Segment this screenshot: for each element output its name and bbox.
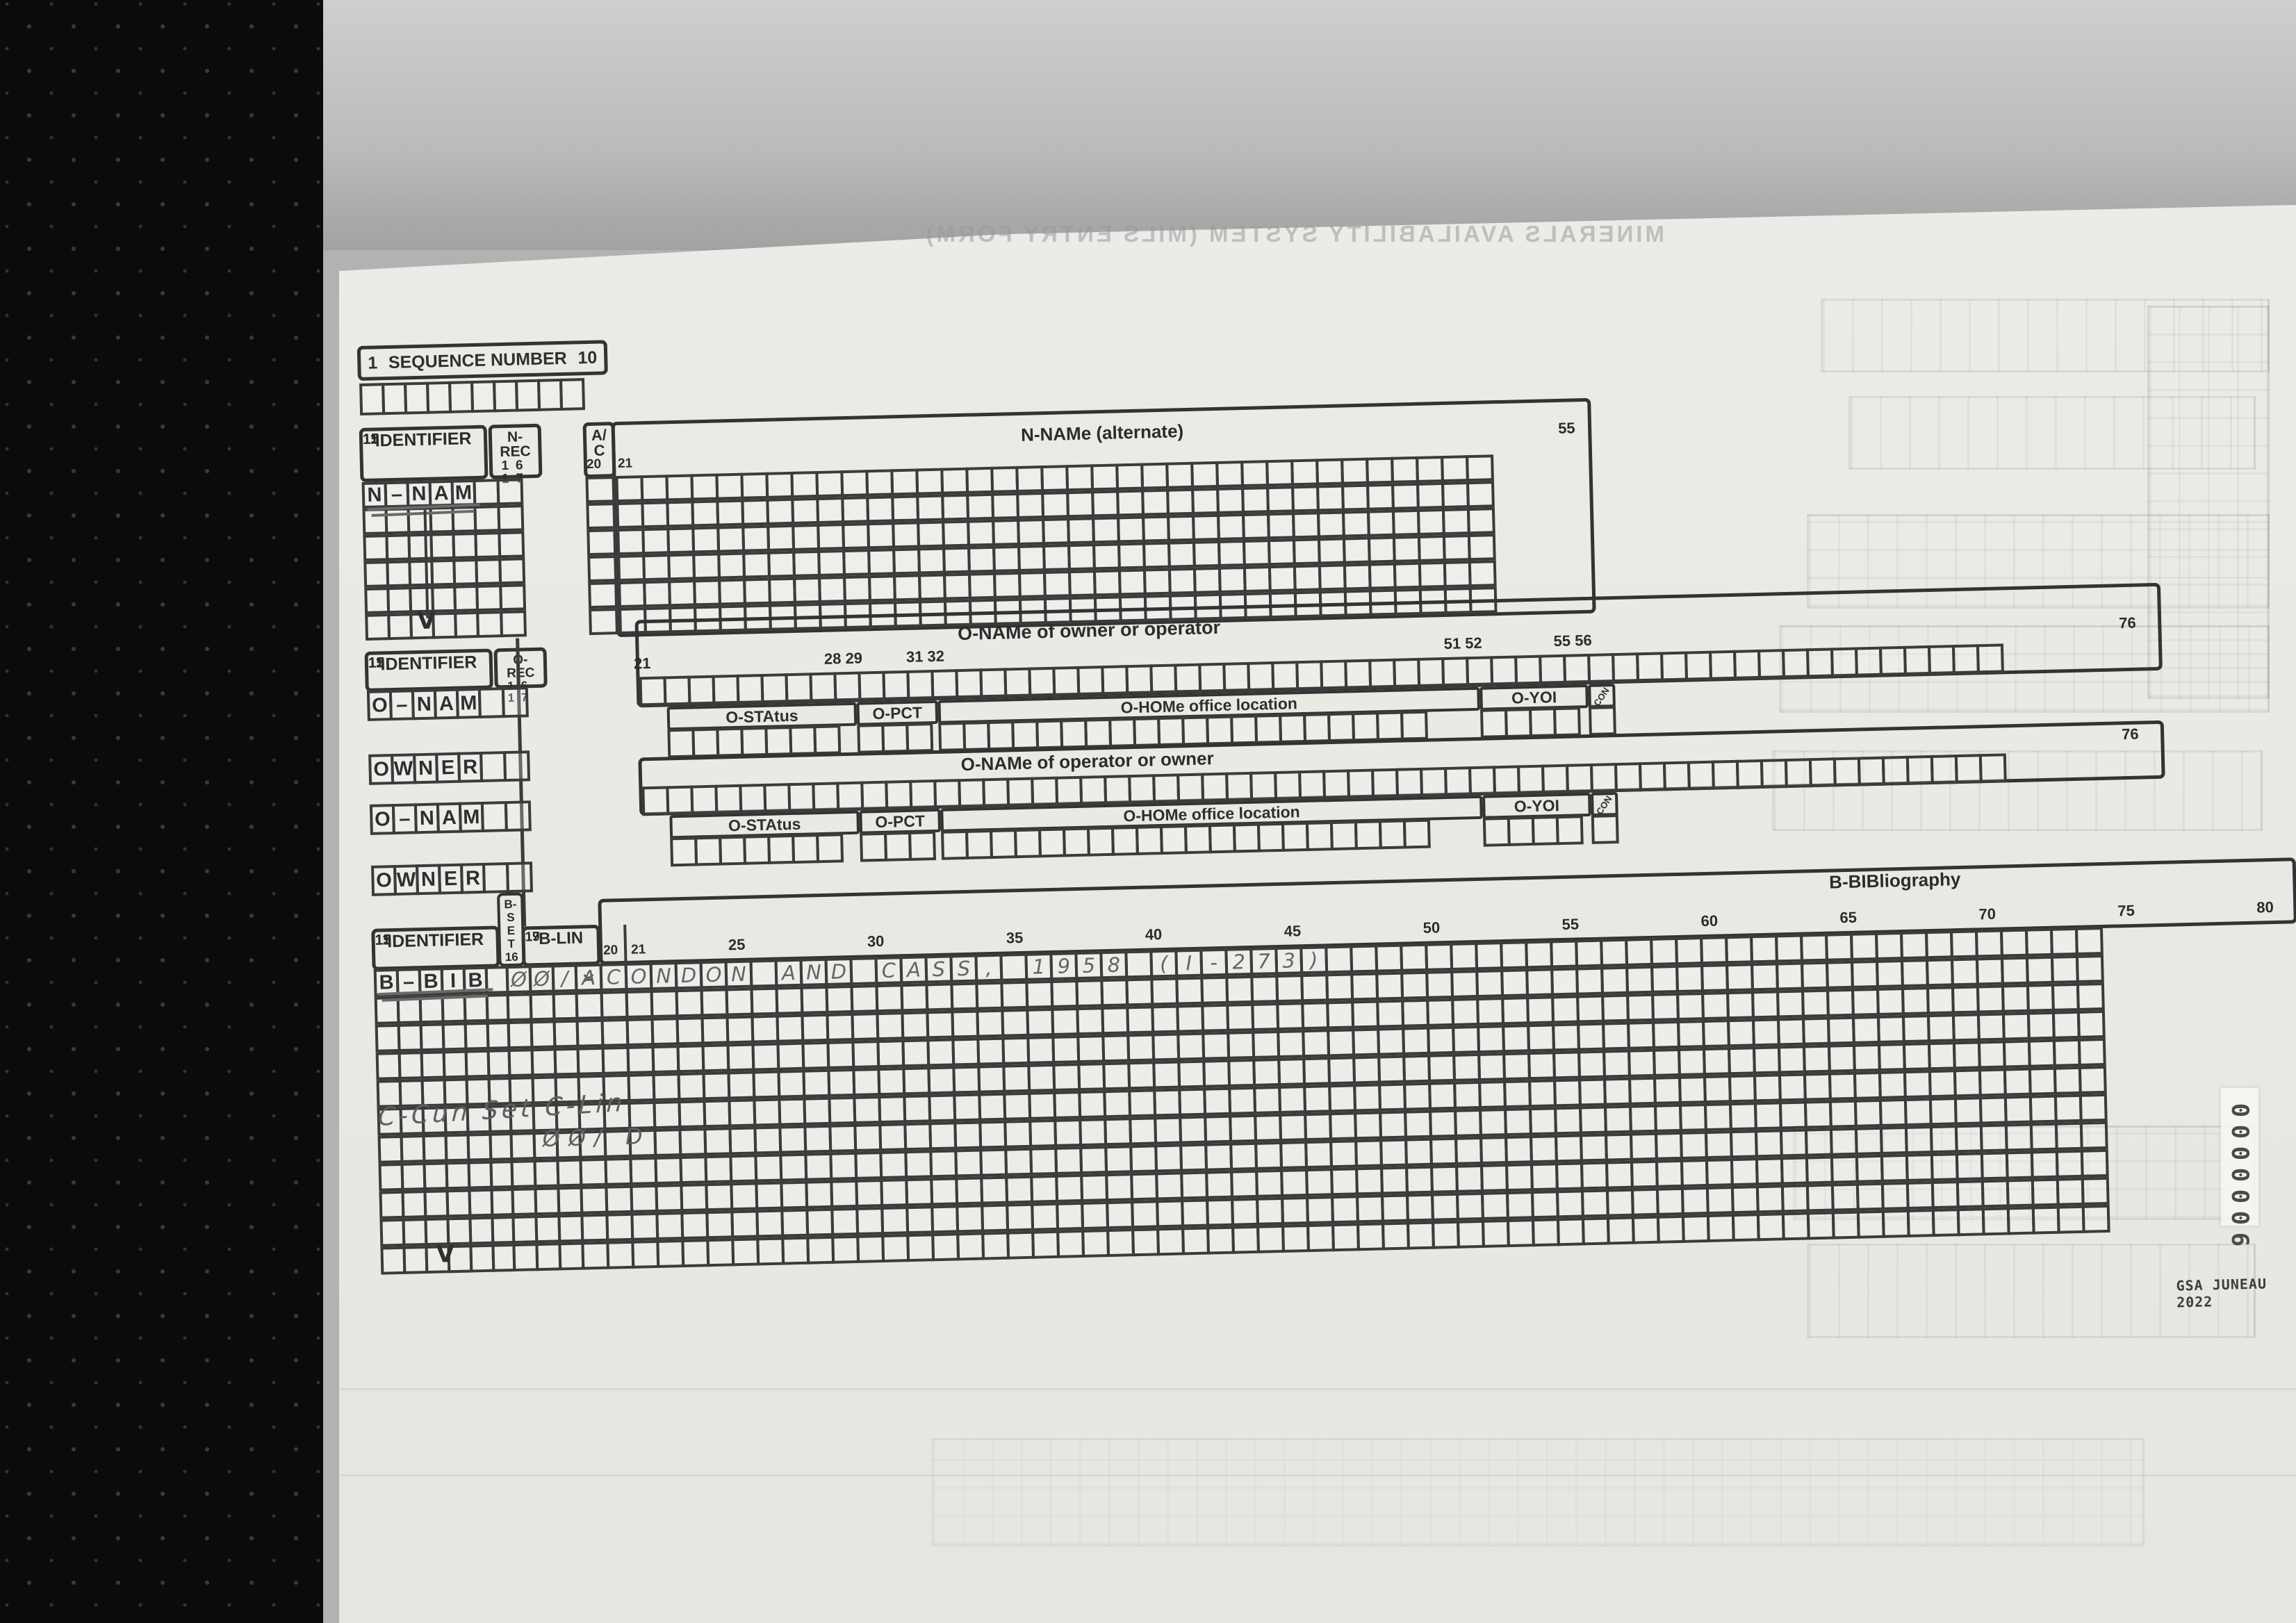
grid-cell [916,495,944,522]
grid-cell [1706,1186,1735,1214]
grid-cell [1830,1128,1858,1156]
grid-cell [1925,930,1953,959]
grid-cell [1077,1062,1106,1091]
grid-cell [705,1183,733,1211]
grid-cell [981,1232,1010,1260]
grid-cell [1857,1210,1885,1239]
grid-cell [902,1066,930,1095]
grid-cell [1930,1153,1959,1181]
grid-cell [1176,773,1204,803]
grid-cell [1704,1103,1732,1131]
ac-cell [587,529,616,556]
grid-cell [576,1047,605,1076]
grid-cell [1341,484,1370,511]
printed-character: E [441,756,455,779]
grid-cell [702,1071,730,1100]
grid-cell [694,837,722,866]
grid-cell [767,834,795,864]
grid-cell [1092,516,1120,543]
grid-cell [1444,766,1472,796]
grid-cell [1325,945,1353,973]
grid-cell [1368,536,1396,563]
grid-cell [1400,711,1428,741]
grid-cell [1514,655,1542,685]
printed-character: R [463,756,478,780]
grid-cell [1468,560,1497,587]
grid-cell [675,1016,704,1045]
grid-cell [678,1100,706,1128]
grid-cell [1663,761,1691,791]
grid-cell [630,1185,658,1213]
grid-cell [1400,971,1429,1000]
ac-cell [586,502,616,529]
n-grid-row [363,531,525,561]
ac-cell [587,555,617,582]
grid-cell [812,782,839,811]
grid-cell [2053,1066,2082,1095]
grid-cell [1331,1195,1359,1224]
grid-cell [1128,1089,1156,1117]
grid-cell [1589,706,1616,736]
o-sub-label-text: O-STAtus [672,814,857,836]
grid-cell [690,785,718,815]
grid-cell [585,476,615,503]
grid-cell: 1 [1024,953,1053,981]
printed-character: O [375,808,391,832]
grid-cell [955,1176,983,1205]
grid-cell [1776,990,1805,1019]
grid-cell [743,578,771,605]
grid-cell [1292,511,1320,538]
grid-cell [1305,1168,1334,1196]
grid-cell [1452,1053,1481,1082]
printed-character: A [438,692,454,716]
grid-cell [1177,1060,1206,1089]
handwritten-character: ( [1160,952,1168,975]
grid-cell [1277,1030,1305,1058]
grid-cell [1331,1223,1360,1251]
grid-cell [2001,957,2029,985]
grid-cell [1809,757,1837,787]
grid-cell [1301,1001,1329,1030]
grid-cell [575,991,604,1020]
grid-cell: 3 [1274,946,1303,975]
grid-cell [800,986,828,1014]
grid-cell [1377,1028,1405,1056]
grid-cell [2050,928,2078,956]
grid-cell [1051,1035,1080,1064]
grid-cell [1405,1166,1434,1194]
grid-cell [1354,820,1382,850]
grid-cell [1254,1114,1282,1142]
grid-cell [1076,1035,1105,1063]
grid-cell [1003,1092,1031,1121]
grid-cell [791,497,819,525]
grid-cell: 7 [1249,947,1278,975]
grid-cell [1202,1060,1231,1088]
grid-cell [1602,1050,1631,1078]
b-col-num-60: 60 [1700,912,1718,931]
n-identifier-header: IDENTIFIER1115 [359,425,489,482]
grid-cell [1500,969,1529,997]
grid-cell [651,1045,680,1073]
grid-cell [906,670,934,700]
grid-cell [679,1155,707,1184]
grid-cell [703,1099,731,1128]
printed-character: N [367,484,382,507]
grid-cell [1703,1047,1731,1076]
grid-cell [857,724,885,754]
grid-cell [1225,975,1254,1004]
grid-cell [967,546,996,573]
grid-cell [1231,1198,1259,1226]
grid-cell [878,1123,907,1151]
grid-cell [852,1068,880,1096]
grid-cell [717,552,746,579]
grid-cell [2082,1205,2110,1233]
handwritten-character: 2 [1232,950,1245,973]
grid-cell [1532,1218,1560,1246]
grid-cell [1432,1221,1460,1249]
grid-cell [958,778,985,808]
grid-cell [2051,955,2079,984]
b-col-num-35: 35 [1006,929,1024,948]
printed-character: – [399,807,411,830]
grid-cell [1281,1224,1310,1253]
grid-cell [1833,757,1861,786]
grid-cell [790,471,819,498]
grid-cell [1252,1058,1281,1087]
grid-cell [979,668,1007,698]
grid-cell [1980,1123,2008,1152]
grid-cell [1475,969,1504,998]
grid-cell [1274,771,1302,800]
grid-cell [742,552,771,579]
grid-cell [2076,982,2105,1011]
grid-cell [1249,771,1277,801]
grid-cell [1391,483,1420,510]
grid-cell [1778,1046,1806,1074]
grid-cell [751,1043,780,1071]
grid-cell [731,1237,760,1266]
grid-cell [803,1097,831,1126]
grid-cell [1503,1080,1532,1108]
n-rec-header-line: REC [492,444,538,460]
grid-cell [677,1072,705,1101]
grid-cell [1367,510,1395,537]
grid-cell [1279,1141,1308,1169]
grid-cell [785,673,812,702]
grid-cell [1404,1138,1433,1167]
grid-cell [858,671,885,701]
grid-cell [1067,517,1095,544]
grid-cell [1104,1117,1132,1146]
grid-cell [1425,943,1453,971]
grid-cell [1040,465,1069,492]
grid-cell [1606,1189,1634,1217]
o-sub-label-text: O-YOI [1482,687,1586,708]
grid-cell [1977,1012,2006,1041]
grid-cell [1976,643,2004,673]
grid-cell [654,1156,682,1185]
grid-cell [627,1073,655,1102]
grid-cell [900,983,928,1012]
grid-cell [1254,714,1282,744]
grid-cell [1143,568,1172,595]
mils-entry-form: 1SEQUENCE NUMBER10IDENTIFIER1115N-REC16 … [311,161,2296,1623]
grid-cell [962,721,990,751]
grid-cell [980,1176,1008,1205]
grid-cell [979,1148,1008,1177]
grid-cell [1402,1055,1431,1083]
grid-cell [1830,648,1858,677]
grid-cell [496,478,523,505]
grid-cell [2030,1123,2058,1151]
grid-cell [1801,989,1830,1018]
grid-cell [827,1069,855,1097]
grid-cell [841,496,869,523]
grid-cell [982,777,1010,807]
grid-cell [1393,536,1421,563]
grid-cell [1982,1207,2010,1235]
grid-cell [792,834,819,864]
b-col-num-65: 65 [1839,909,1857,928]
grid-cell [606,1241,634,1269]
grid-cell [1504,708,1532,738]
grid-cell [817,550,846,577]
grid-cell [951,1038,980,1066]
handwritten-character: D [830,959,846,984]
grid-cell [842,522,870,550]
grid-cell [1175,977,1204,1005]
grid-cell [880,1206,909,1235]
grid-cell [1000,981,1028,1010]
printed-character: N [419,807,434,830]
handwritten-character: 7 [1257,949,1270,973]
grid-cell [1317,511,1345,538]
grid-cell [1580,1134,1608,1162]
grid-cell [1206,1226,1235,1255]
printed-character: O [376,869,392,893]
grid-cell [1376,711,1404,741]
grid-cell [1976,957,2004,986]
grid-cell [816,833,844,863]
grid-cell [793,577,821,604]
grid-cell [1079,1146,1108,1174]
grid-cell [1531,1190,1559,1219]
grid-cell [1852,1016,1880,1044]
grid-cell [1117,542,1146,569]
grid-cell [1002,1064,1031,1093]
grid-cell [1217,540,1246,567]
grid-cell [1407,1221,1435,1250]
handwritten-character: N [806,960,822,984]
grid-cell [1380,1167,1409,1195]
grid-cell [641,786,669,816]
handwritten-character: 3 [1282,948,1295,972]
grid-cell [1154,1116,1182,1144]
grid-cell [1517,765,1545,795]
grid-cell [740,727,768,757]
grid-cell [1156,1227,1185,1255]
grid-cell [1150,978,1179,1006]
grid-cell [1703,1075,1732,1103]
grid-cell [749,959,778,988]
grid-cell [753,1098,781,1127]
grid-cell [1266,486,1295,513]
grid-cell [1602,1022,1630,1051]
grid-cell [1418,561,1447,588]
grid-cell [905,723,933,752]
grid-cell [1066,491,1094,518]
grid-cell [1426,998,1454,1027]
grid-cell: N [724,959,753,988]
b-col-num-75: 75 [2117,902,2135,921]
grid-cell [1295,660,1323,690]
grid-cell [1027,1064,1056,1092]
grid-cell [1506,1191,1534,1219]
grid-cell [752,1071,780,1099]
b-col-num-55: 55 [1561,915,1579,934]
grid-cell [700,988,728,1016]
grid-cell [1176,1005,1204,1033]
sequence-label: SEQUENCE NUMBER [388,348,568,372]
grid-cell [950,982,978,1011]
o-yoi-cells-1 [1480,707,1581,739]
grid-cell [865,469,894,496]
grid-cell [580,1214,609,1242]
grid-cell [1776,962,1804,991]
grid-cell [1476,997,1504,1025]
grid-cell [643,580,671,607]
grid-cell [951,1010,979,1039]
grid-cell [1443,534,1471,561]
grid-cell [1043,570,1072,598]
o-nam-row: O–NAM [367,686,529,721]
grid-cell [1702,1019,1730,1048]
grid-cell [1504,1135,1533,1164]
grid-cell [938,722,966,752]
grid-cell [1629,1105,1657,1133]
grid-cell [691,500,719,527]
grid-cell [1876,959,1904,988]
grid-cell [2007,1207,2035,1235]
grid-cell [1001,1009,1029,1037]
grid-cell [1152,1060,1181,1089]
grid-cell [1901,987,1930,1015]
grid-cell [718,579,746,606]
grid-cell [1636,652,1664,682]
grid-cell [1878,1071,1907,1099]
grid-cell [1425,971,1454,999]
handwritten-note-2: ØØ/ D [542,1123,651,1152]
grid-cell [901,1039,930,1067]
grid-cell [667,553,696,580]
grid-cell [776,1014,804,1043]
grid-cell [1381,1222,1410,1251]
grid-cell [1854,1099,1883,1128]
grid-cell [956,1232,985,1260]
grid-cell [1004,1148,1033,1176]
grid-cell [1785,758,1812,788]
grid-cell [931,1233,960,1261]
grid-cell [1928,1069,1957,1098]
grid-cell [1168,568,1197,595]
handwritten-character: O [630,964,647,989]
grid-cell [2001,984,2030,1013]
grid-cell [1443,561,1472,588]
grid-cell [1478,1080,1507,1109]
grid-cell [1322,769,1350,799]
grid-cell [716,727,744,757]
grid-cell [1654,1104,1682,1132]
grid-cell [1826,989,1855,1017]
grid-cell [630,1212,659,1241]
grid-cell [775,987,803,1015]
grid-cell [2055,1122,2083,1151]
grid-cell [681,1239,710,1267]
grid-cell [1303,1085,1331,1113]
grid-cell [1205,1171,1233,1199]
grid-cell [830,1180,858,1208]
grid-cell [1084,718,1112,748]
grid-cell [941,494,969,521]
grid-cell [1006,1203,1034,1232]
grid-cell [729,1154,757,1183]
grid-cell [605,1213,634,1242]
b-set-column-header: B-SET16 [497,893,525,967]
grid-cell [1626,994,1655,1022]
handwritten-character: - [1210,950,1217,974]
grid-cell [926,1010,954,1039]
grid-cell [1225,772,1253,802]
grid-cell [498,531,525,558]
grid-cell [1111,826,1139,856]
grid-cell [506,862,533,893]
grid-cell [809,672,837,702]
grid-cell [473,505,500,532]
grid-cell [1529,707,1557,737]
grid-cell [776,1042,805,1071]
grid-cell [1705,1158,1734,1187]
grid-cell [1152,773,1180,803]
grid-cell [1777,1018,1805,1046]
grid-cell [1025,980,1053,1009]
o-col-num: 31 32 [906,648,945,666]
o-rec-header-line: REC [498,666,543,681]
grid-cell [499,584,526,611]
grid-cell [930,1177,958,1205]
grid-cell [1527,1051,1556,1080]
printed-character: R [466,867,481,891]
grid-cell [1329,1112,1357,1140]
grid-cell [933,779,961,809]
grid-cell [1352,1055,1381,1084]
grid-cell [1483,817,1511,847]
grid-cell [1103,1089,1131,1118]
grid-cell [716,500,744,527]
grid-cell [1727,1019,1755,1047]
grid-cell [1577,1023,1605,1051]
grid-cell [868,575,896,602]
grid-cell [1243,566,1272,593]
grid-cell [2032,1206,2060,1235]
sequence-number-header: 1SEQUENCE NUMBER10 [357,340,608,381]
grid-cell [1932,1208,1960,1237]
grid-cell [641,501,669,528]
col-num-20: 20 [587,457,602,473]
grid-cell [943,573,971,600]
